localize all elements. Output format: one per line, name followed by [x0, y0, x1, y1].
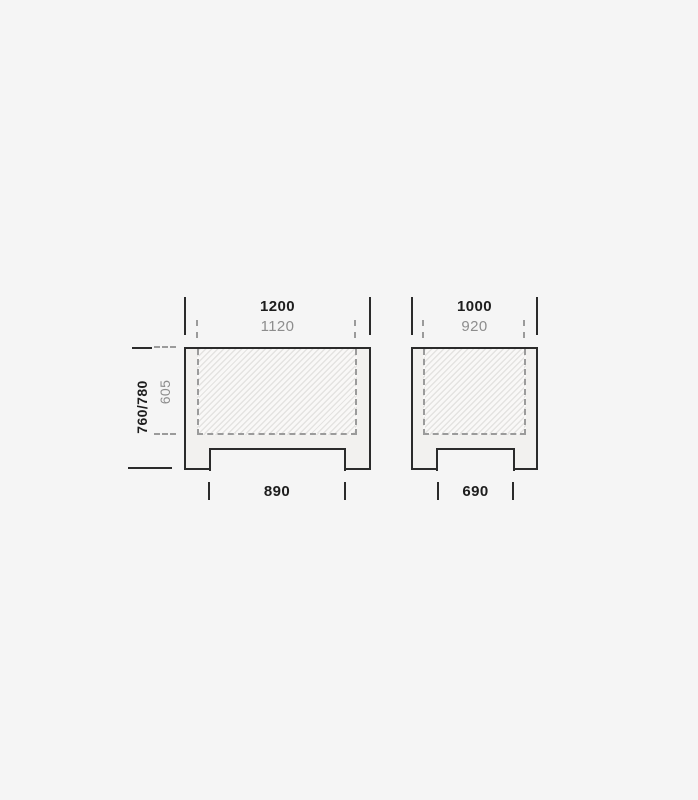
- left-inner-width-label: 1120: [184, 319, 371, 335]
- right-table-leg-notch: [436, 448, 515, 471]
- left-clearance-tick-bottom: [154, 433, 176, 435]
- right-outer-width-label: 1000: [411, 299, 538, 315]
- left-table-leg-notch: [209, 448, 346, 471]
- left-leg-span-label: 890: [208, 484, 346, 500]
- right-table-hatch-area: [423, 349, 526, 435]
- left-overall-height-label: 760/780: [134, 380, 150, 433]
- left-height-tick-bottom: [128, 467, 172, 469]
- left-table-hatch-area: [197, 349, 357, 435]
- left-height-tick-top: [132, 347, 152, 349]
- left-clearance-tick-top: [154, 346, 176, 348]
- left-clearance-height-label: 605: [157, 380, 173, 405]
- left-outer-width-label: 1200: [184, 299, 371, 315]
- dimension-drawing-canvas: 1200 1120 760/780 605 890 1000 920: [0, 0, 698, 800]
- right-leg-span-label: 690: [437, 484, 514, 500]
- right-inner-width-label: 920: [411, 319, 538, 335]
